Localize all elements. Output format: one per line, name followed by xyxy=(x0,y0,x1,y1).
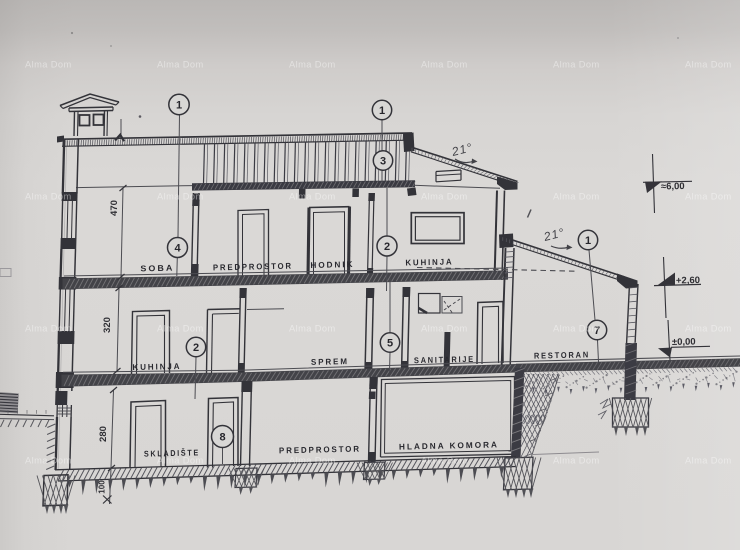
svg-text:280: 280 xyxy=(98,426,109,442)
svg-text:Alma Dom: Alma Dom xyxy=(685,456,732,466)
svg-text:Alma Dom: Alma Dom xyxy=(157,60,204,70)
svg-text:Alma Dom: Alma Dom xyxy=(25,60,72,70)
svg-text:Alma Dom: Alma Dom xyxy=(421,456,468,466)
svg-text:Alma Dom: Alma Dom xyxy=(553,192,600,202)
svg-text:3: 3 xyxy=(380,156,386,168)
svg-text:≈6,00: ≈6,00 xyxy=(661,181,685,193)
svg-text:Alma Dom: Alma Dom xyxy=(25,324,72,334)
svg-text:Alma Dom: Alma Dom xyxy=(685,60,732,70)
svg-text:Alma Dom: Alma Dom xyxy=(157,324,204,334)
svg-text:Alma Dom: Alma Dom xyxy=(289,324,336,334)
svg-text:KUHINJA: KUHINJA xyxy=(132,361,181,372)
svg-text:Alma Dom: Alma Dom xyxy=(289,456,336,466)
svg-text:Alma Dom: Alma Dom xyxy=(421,192,468,202)
svg-text:5: 5 xyxy=(387,338,393,350)
svg-text:Alma Dom: Alma Dom xyxy=(685,324,732,334)
svg-text:Alma Dom: Alma Dom xyxy=(553,456,600,466)
svg-text:2: 2 xyxy=(193,342,199,354)
svg-text:Alma Dom: Alma Dom xyxy=(553,60,600,70)
svg-text:Alma Dom: Alma Dom xyxy=(25,192,72,202)
svg-text:Alma Dom: Alma Dom xyxy=(421,60,468,70)
svg-text:Alma Dom: Alma Dom xyxy=(421,324,468,334)
svg-text:Alma Dom: Alma Dom xyxy=(685,192,732,202)
svg-text:2: 2 xyxy=(384,241,390,253)
svg-text:Alma Dom: Alma Dom xyxy=(157,192,204,202)
svg-text:1: 1 xyxy=(585,235,591,247)
svg-text:RESTORAN: RESTORAN xyxy=(534,349,590,360)
svg-text:8: 8 xyxy=(219,432,225,444)
svg-text:Alma Dom: Alma Dom xyxy=(157,456,204,466)
svg-text:Alma Dom: Alma Dom xyxy=(553,324,600,334)
svg-text:Alma Dom: Alma Dom xyxy=(289,60,336,70)
svg-text:1: 1 xyxy=(379,105,385,117)
svg-text:1: 1 xyxy=(176,100,182,112)
svg-text:Alma Dom: Alma Dom xyxy=(289,192,336,202)
svg-text:Alma Dom: Alma Dom xyxy=(25,456,72,466)
svg-text:KUHINJA: KUHINJA xyxy=(405,256,453,267)
svg-text:100: 100 xyxy=(98,480,107,494)
svg-text:+2,60: +2,60 xyxy=(676,275,700,287)
svg-text:4: 4 xyxy=(174,243,181,255)
svg-text:SPREM: SPREM xyxy=(311,356,349,367)
svg-text:SANITARIJE: SANITARIJE xyxy=(414,354,475,365)
svg-text:PREDPROSTOR: PREDPROSTOR xyxy=(213,261,293,273)
svg-text:HODNIK: HODNIK xyxy=(310,259,354,270)
svg-text:SOBA: SOBA xyxy=(140,263,174,274)
svg-text:PREDPROSTOR: PREDPROSTOR xyxy=(279,444,361,456)
svg-text:470: 470 xyxy=(109,200,120,216)
svg-text:320: 320 xyxy=(102,317,113,333)
